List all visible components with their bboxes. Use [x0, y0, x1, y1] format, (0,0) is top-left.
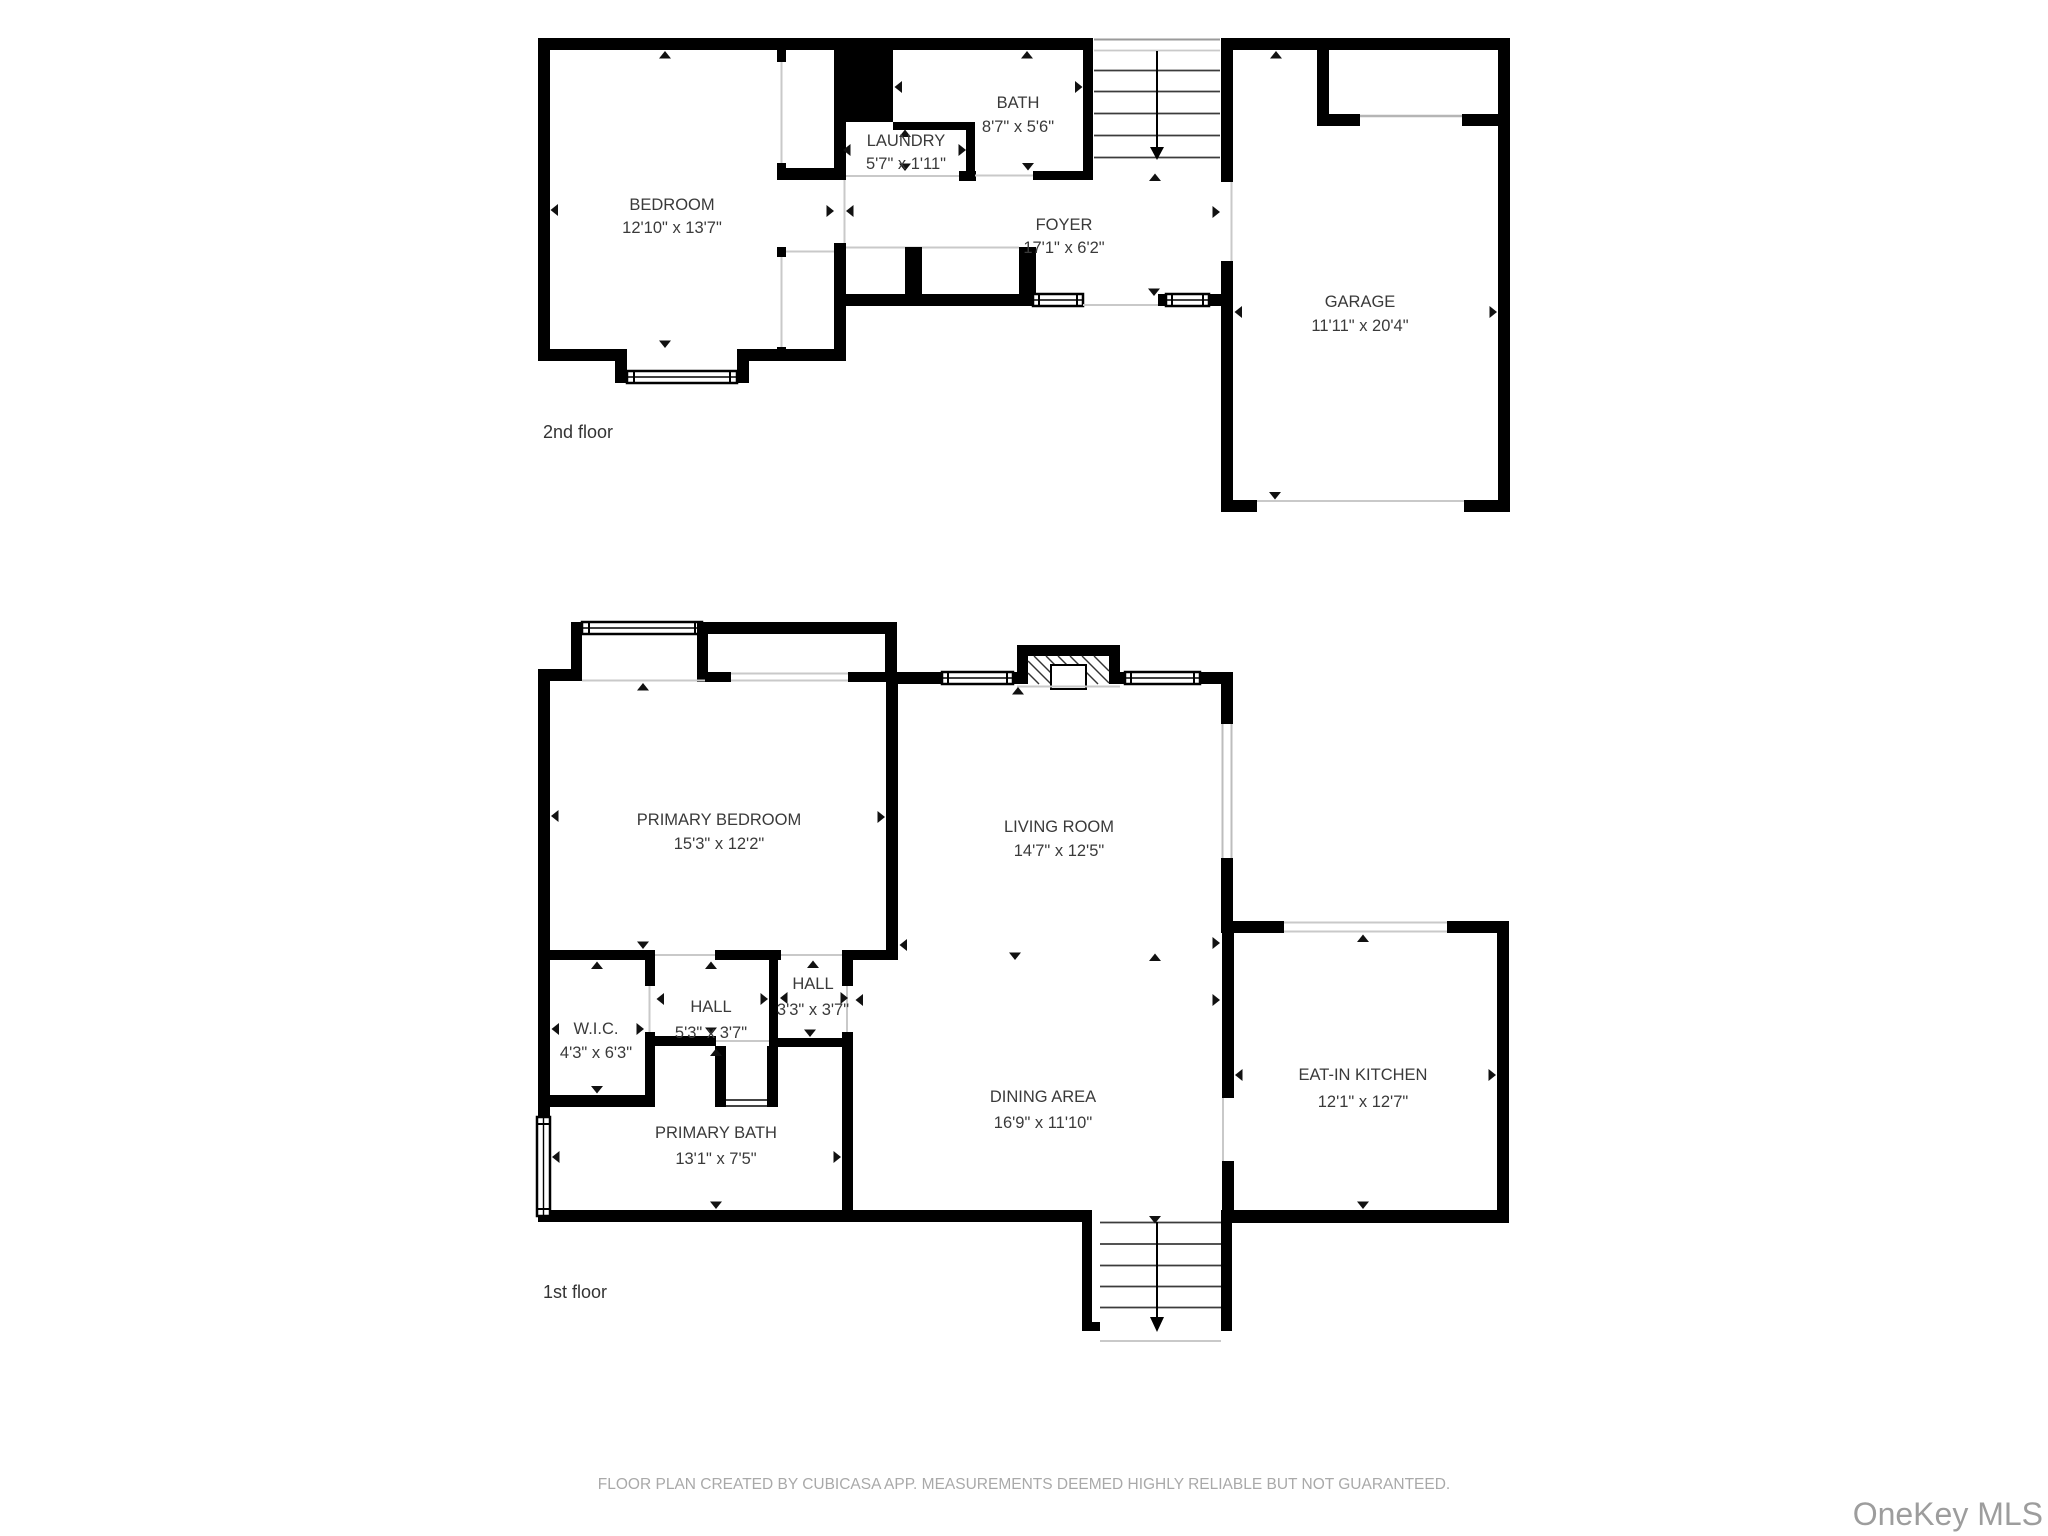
svg-text:FLOOR PLAN CREATED BY CUBICASA: FLOOR PLAN CREATED BY CUBICASA APP. MEAS…	[598, 1476, 1450, 1493]
svg-text:17'1" x 6'2": 17'1" x 6'2"	[1023, 239, 1104, 257]
svg-text:PRIMARY BEDROOM: PRIMARY BEDROOM	[637, 811, 801, 829]
svg-text:BEDROOM: BEDROOM	[629, 196, 714, 214]
svg-text:GARAGE: GARAGE	[1325, 293, 1396, 311]
svg-text:PRIMARY BATH: PRIMARY BATH	[655, 1124, 777, 1142]
svg-text:5'7" x 1'11": 5'7" x 1'11"	[866, 155, 946, 173]
svg-text:12'10" x 13'7": 12'10" x 13'7"	[622, 219, 722, 237]
svg-text:EAT-IN KITCHEN: EAT-IN KITCHEN	[1299, 1066, 1428, 1084]
svg-text:8'7" x 5'6": 8'7" x 5'6"	[982, 118, 1054, 136]
svg-text:W.I.C.: W.I.C.	[574, 1020, 619, 1038]
svg-text:LAUNDRY: LAUNDRY	[867, 132, 946, 150]
svg-text:FOYER: FOYER	[1036, 216, 1093, 234]
svg-text:OneKey MLS: OneKey MLS	[1853, 1496, 2043, 1532]
svg-text:12'1" x 12'7": 12'1" x 12'7"	[1318, 1093, 1409, 1111]
svg-text:BATH: BATH	[997, 94, 1040, 112]
svg-text:14'7" x 12'5": 14'7" x 12'5"	[1014, 842, 1105, 860]
svg-text:5'3" x 3'7": 5'3" x 3'7"	[675, 1024, 747, 1042]
svg-text:11'11" x 20'4": 11'11" x 20'4"	[1311, 317, 1408, 335]
svg-text:3'3" x 3'7": 3'3" x 3'7"	[777, 1001, 849, 1019]
svg-text:LIVING ROOM: LIVING ROOM	[1004, 818, 1114, 836]
svg-text:HALL: HALL	[792, 975, 833, 993]
svg-text:15'3" x 12'2": 15'3" x 12'2"	[674, 835, 765, 853]
svg-text:DINING AREA: DINING AREA	[990, 1088, 1096, 1106]
svg-text:1st floor: 1st floor	[543, 1282, 607, 1302]
svg-text:HALL: HALL	[690, 998, 731, 1016]
svg-text:2nd floor: 2nd floor	[543, 422, 613, 442]
svg-text:4'3" x 6'3": 4'3" x 6'3"	[560, 1044, 632, 1062]
svg-text:16'9" x 11'10": 16'9" x 11'10"	[994, 1114, 1093, 1132]
svg-text:13'1" x 7'5": 13'1" x 7'5"	[675, 1150, 756, 1168]
